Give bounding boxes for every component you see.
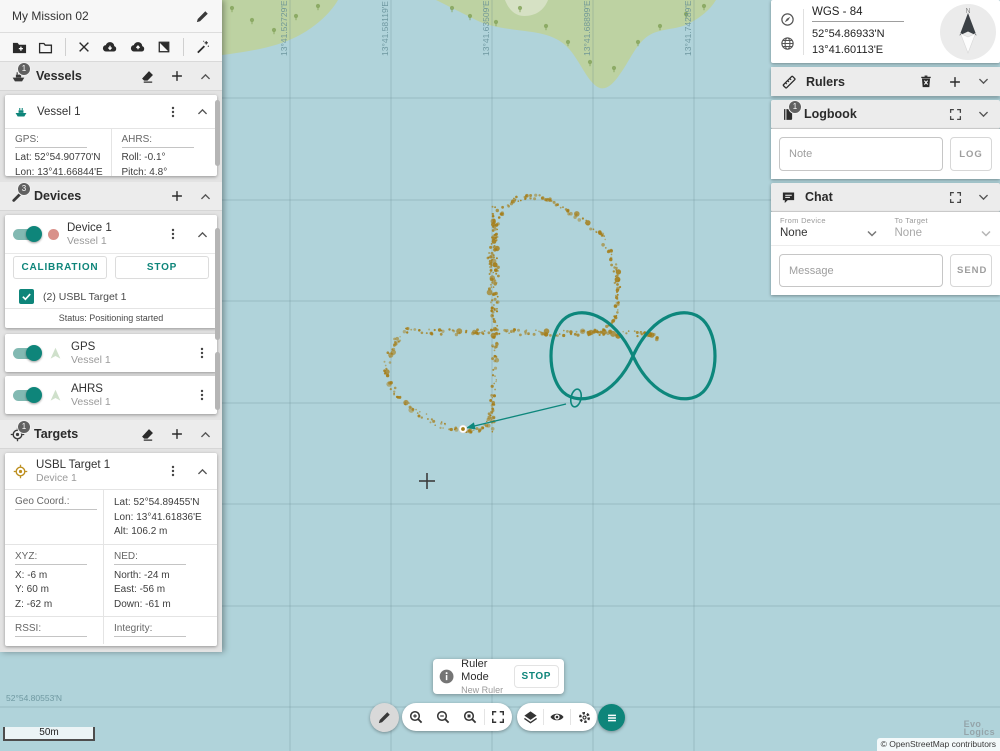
globe-icon xyxy=(780,36,795,51)
collapse-logbook-button[interactable] xyxy=(977,110,990,119)
to-target-select[interactable]: To Target None xyxy=(886,212,1000,245)
integrity-label: Integrity: xyxy=(114,623,186,637)
rulers-panel: Rulers xyxy=(771,67,1000,96)
save-contrast-icon xyxy=(157,40,171,54)
svg-text:13°41.63509'E: 13°41.63509'E xyxy=(481,0,491,56)
device-status-dot xyxy=(48,229,59,240)
target-geo-lat: Lat: 52°54.89455'N xyxy=(114,496,217,511)
ruler-stop-button[interactable]: STOP xyxy=(514,665,559,688)
devices-icon-wrap: 3 xyxy=(10,189,25,204)
collapse-chat-button[interactable] xyxy=(977,193,990,202)
chat-header[interactable]: Chat xyxy=(771,183,1000,212)
vessel-row[interactable]: Vessel 1 xyxy=(5,95,217,128)
layers-button[interactable] xyxy=(517,703,543,731)
target-x: X: -6 m xyxy=(15,569,103,584)
vessels-icon-wrap: 1 xyxy=(10,69,27,84)
cloud-upload-icon xyxy=(130,39,146,55)
svg-text:13°41.68899'E: 13°41.68899'E xyxy=(582,0,592,56)
add-ruler-button[interactable] xyxy=(948,75,962,89)
device-stop-button[interactable]: STOP xyxy=(115,256,209,279)
zoom-out-icon xyxy=(435,709,451,725)
zoom-out-button[interactable] xyxy=(429,703,456,731)
plus-icon xyxy=(170,69,184,83)
devices-title: Devices xyxy=(34,189,81,203)
usbl-target-checkbox-label: (2) USBL Target 1 xyxy=(43,291,126,303)
target-geo-section: Geo Coord.: Lat: 52°54.89455'N Lon: 13°4… xyxy=(5,489,217,544)
plus-icon xyxy=(170,427,184,441)
dropdown-arrow-icon xyxy=(867,230,877,237)
ruler-icon xyxy=(781,74,797,90)
pencil-icon xyxy=(195,9,210,24)
plus-icon xyxy=(170,189,184,203)
toolbar-divider xyxy=(65,38,66,56)
chevron-up-icon xyxy=(199,72,212,81)
svg-text:13°41.74289'E: 13°41.74289'E xyxy=(683,0,693,56)
datum-label: WGS - 84 xyxy=(812,6,904,22)
magic-wand-icon xyxy=(195,40,210,55)
gps-toggle[interactable] xyxy=(13,348,40,359)
right-sidebar: WGS - 84 52°54.86933'N 13°41.60113'E N R… xyxy=(771,0,1000,295)
vessel-icon xyxy=(13,105,29,119)
targets-icon-wrap: 1 xyxy=(10,427,25,442)
delete-rulers-button[interactable] xyxy=(919,74,933,89)
ahrs-pitch: Pitch: 4.8° xyxy=(122,166,218,177)
from-device-label: From Device xyxy=(780,216,877,225)
chat-title: Chat xyxy=(805,190,833,204)
coordinates-card: WGS - 84 52°54.86933'N 13°41.60113'E N xyxy=(771,0,1000,63)
collapse-vessels-button[interactable] xyxy=(199,72,212,81)
gps-lon: Lon: 13°41.66844'E xyxy=(15,166,111,177)
import-mission-button[interactable] xyxy=(102,39,118,55)
dropdown-arrow-icon xyxy=(981,230,991,237)
collapse-target-button[interactable] xyxy=(196,467,209,476)
vessel-menu-button[interactable] xyxy=(166,105,180,119)
rssi-label: RSSI: xyxy=(15,623,87,637)
mission-tools-button[interactable] xyxy=(195,40,210,55)
kebab-menu-icon xyxy=(166,464,180,478)
check-icon xyxy=(21,291,32,302)
target-xyz-ned-section: XYZ: X: -6 m Y: 60 m Z: -62 m NED: North… xyxy=(5,544,217,617)
layers-icon xyxy=(523,710,538,725)
target-z: Z: -62 m xyxy=(15,598,103,613)
targets-section-header[interactable]: 1 Targets xyxy=(0,420,222,449)
message-input[interactable] xyxy=(779,254,943,287)
zoom-controls xyxy=(402,703,512,731)
target-menu-button[interactable] xyxy=(166,464,180,478)
ahrs-roll: Roll: -0.1° xyxy=(122,151,218,166)
target-card: USBL Target 1Device 1 Geo Coord.: Lat: 5… xyxy=(5,453,217,646)
ahrs-toggle[interactable] xyxy=(13,390,40,401)
gps-device-row[interactable]: GPSVessel 1 xyxy=(5,334,217,372)
logbook-title: Logbook xyxy=(804,107,857,121)
gear-icon xyxy=(577,710,592,725)
ahrs-menu-button[interactable] xyxy=(195,388,209,402)
cursor-lat: 52°54.86933'N xyxy=(812,26,930,42)
gps-device-card: GPSVessel 1 xyxy=(5,334,217,372)
eye-icon xyxy=(549,709,565,725)
evologics-logo: Evo Logics xyxy=(964,720,995,736)
target-row[interactable]: USBL Target 1Device 1 xyxy=(5,453,217,489)
gps-menu-button[interactable] xyxy=(195,346,209,360)
collapse-device-button[interactable] xyxy=(196,230,209,239)
compass-icon xyxy=(780,12,795,27)
target-geo-lon: Lon: 13°41.61836'E xyxy=(114,511,217,526)
zoom-in-icon xyxy=(408,709,424,725)
clear-vessels-button[interactable] xyxy=(140,69,155,84)
kebab-menu-icon xyxy=(195,346,209,360)
devices-section-header[interactable]: 3 Devices xyxy=(0,182,222,211)
to-target-value: None xyxy=(895,227,923,239)
gps-device-vessel: Vessel 1 xyxy=(71,354,111,366)
save-mission-button[interactable] xyxy=(157,40,171,54)
logo-line-2: Logics xyxy=(964,728,995,736)
devices-list: Device 1Vessel 1 CALIBRATION STOP (2) US… xyxy=(0,211,222,420)
usbl-target-checkbox[interactable] xyxy=(19,289,34,304)
chevron-up-icon xyxy=(196,467,209,476)
left-sidebar: My Mission 02 1 Vessels xyxy=(0,0,222,652)
pencil-icon xyxy=(377,710,392,725)
to-target-label: To Target xyxy=(895,216,992,225)
add-target-button[interactable] xyxy=(170,427,184,441)
target-rssi-section: RSSI: Integrity: xyxy=(5,616,217,646)
logbook-panel: 1 Logbook LOG xyxy=(771,100,1000,179)
ahrs-device-vessel: Vessel 1 xyxy=(71,396,111,408)
targets-list: USBL Target 1Device 1 Geo Coord.: Lat: 5… xyxy=(0,449,222,652)
export-mission-button[interactable] xyxy=(130,39,146,55)
usbl-target-icon xyxy=(13,464,28,479)
close-mission-button[interactable] xyxy=(77,40,91,54)
device-row[interactable]: Device 1Vessel 1 xyxy=(5,215,217,253)
chevron-down-icon xyxy=(977,193,990,202)
visibility-button[interactable] xyxy=(544,703,570,731)
vessel-name: Vessel 1 xyxy=(37,106,80,118)
logbook-header[interactable]: 1 Logbook xyxy=(771,100,1000,129)
map-settings-button[interactable] xyxy=(571,703,597,731)
clear-targets-button[interactable] xyxy=(140,427,155,442)
target-east: East: -56 m xyxy=(114,583,217,598)
targets-count-badge: 1 xyxy=(17,420,31,434)
ahrs-device-card: AHRSVessel 1 xyxy=(5,376,217,414)
cloud-download-icon xyxy=(102,39,118,55)
vessels-section-header[interactable]: 1 Vessels xyxy=(0,62,222,91)
chevron-up-icon xyxy=(199,430,212,439)
device-toggle[interactable] xyxy=(13,229,40,240)
zoom-in-button[interactable] xyxy=(402,703,429,731)
rulers-header[interactable]: Rulers xyxy=(771,67,1000,96)
fullscreen-icon xyxy=(949,108,962,121)
logbook-count-badge: 1 xyxy=(788,100,802,114)
collapse-devices-button[interactable] xyxy=(199,192,212,201)
navigation-icon xyxy=(48,388,63,403)
devices-count-badge: 3 xyxy=(17,182,31,196)
targets-title: Targets xyxy=(34,427,78,441)
scrollbar-thumb[interactable] xyxy=(215,100,220,166)
log-button[interactable]: LOG xyxy=(950,137,992,171)
add-device-button[interactable] xyxy=(170,189,184,203)
rulers-title: Rulers xyxy=(806,75,845,89)
target-north: North: -24 m xyxy=(114,569,217,584)
usbl-target-checkbox-row[interactable]: (2) USBL Target 1 xyxy=(5,284,217,308)
zoom-area-icon xyxy=(462,709,478,725)
gps-lat: Lat: 52°54.90770'N xyxy=(15,151,111,166)
scrollbar-thumb[interactable] xyxy=(215,228,220,340)
close-icon xyxy=(77,40,91,54)
ahrs-device-name: AHRS xyxy=(71,383,111,395)
ned-label: NED: xyxy=(114,551,186,565)
note-input[interactable] xyxy=(779,137,943,171)
ruler-mode-button[interactable] xyxy=(370,703,399,732)
eraser-icon xyxy=(140,427,155,442)
gps-device-name: GPS xyxy=(71,341,111,353)
device-vessel: Vessel 1 xyxy=(67,235,112,247)
cursor-lon: 13°41.60113'E xyxy=(812,42,930,58)
expand-rulers-button[interactable] xyxy=(977,77,990,86)
ahrs-label: AHRS: xyxy=(122,134,194,148)
main-menu-button[interactable] xyxy=(598,704,625,731)
target-name: USBL Target 1 xyxy=(36,459,110,471)
chat-panel: Chat From Device None To Target None xyxy=(771,183,1000,295)
chevron-up-icon xyxy=(196,107,209,116)
from-device-select[interactable]: From Device None xyxy=(771,212,886,245)
target-geo-alt: Alt: 106.2 m xyxy=(114,525,217,540)
toolbar-divider xyxy=(183,38,184,56)
logbook-body: LOG xyxy=(771,129,1000,179)
svg-text:52°54.80553'N: 52°54.80553'N xyxy=(6,693,62,703)
device-card: Device 1Vessel 1 CALIBRATION STOP (2) US… xyxy=(5,215,217,328)
folder-icon xyxy=(38,40,53,55)
svg-text:13°41.58119'E: 13°41.58119'E xyxy=(380,1,390,56)
chat-icon xyxy=(781,190,796,205)
vessels-title: Vessels xyxy=(36,69,82,83)
kebab-menu-icon xyxy=(195,388,209,402)
fullscreen-icon xyxy=(491,710,505,724)
svg-text:13°41.52729'E: 13°41.52729'E xyxy=(279,0,289,56)
ahrs-device-row[interactable]: AHRSVessel 1 xyxy=(5,376,217,414)
mission-header: My Mission 02 xyxy=(0,0,222,33)
chevron-down-icon xyxy=(977,77,990,86)
mission-toolbar xyxy=(0,33,222,62)
app-window: 13°41.52729'E13°41.58119'E13°41.63509'E1… xyxy=(0,0,1000,751)
info-icon xyxy=(439,667,454,686)
collapse-vessel-button[interactable] xyxy=(196,107,209,116)
device-name: Device 1 xyxy=(67,222,112,234)
target-down: Down: -61 m xyxy=(114,598,217,613)
vessel-telemetry: GPS: Lat: 52°54.90770'N Lon: 13°41.66844… xyxy=(5,128,217,176)
zoom-area-button[interactable] xyxy=(457,703,484,731)
fit-view-button[interactable] xyxy=(485,703,512,731)
navigation-icon xyxy=(48,346,63,361)
map-view-controls xyxy=(517,703,597,731)
kebab-menu-icon xyxy=(166,227,180,241)
scrollbar-thumb[interactable] xyxy=(215,352,220,410)
logbook-icon-wrap: 1 xyxy=(781,107,795,122)
send-button[interactable]: SEND xyxy=(950,254,992,287)
gps-label: GPS: xyxy=(15,134,87,148)
hamburger-icon xyxy=(605,711,619,725)
device-menu-button[interactable] xyxy=(166,227,180,241)
toast-subtitle: New Ruler xyxy=(461,685,506,696)
map-scale-bar: 50m xyxy=(3,727,95,741)
edit-mission-button[interactable] xyxy=(195,9,210,24)
expand-logbook-button[interactable] xyxy=(949,108,962,121)
from-device-value: None xyxy=(780,227,808,239)
device-status-text: Status: Positioning started xyxy=(5,308,217,328)
target-device: Device 1 xyxy=(36,472,110,484)
target-y: Y: 60 m xyxy=(15,583,103,598)
mission-title: My Mission 02 xyxy=(12,9,89,23)
toast-title: Ruler Mode xyxy=(461,658,506,684)
geo-coord-label: Geo Coord.: xyxy=(15,496,97,510)
fullscreen-icon xyxy=(949,191,962,204)
trash-x-icon xyxy=(919,74,933,89)
eraser-icon xyxy=(140,69,155,84)
chat-body: From Device None To Target None SEND xyxy=(771,212,1000,295)
map-attribution: © OpenStreetMap contributors xyxy=(877,738,1000,751)
vessel-card: Vessel 1 GPS: Lat: 52°54.90770'N Lon: 13… xyxy=(5,95,217,176)
add-vessel-button[interactable] xyxy=(170,69,184,83)
collapse-targets-button[interactable] xyxy=(199,430,212,439)
open-mission-button[interactable] xyxy=(38,40,53,55)
compass-rose[interactable]: N xyxy=(938,2,998,62)
vessels-list: Vessel 1 GPS: Lat: 52°54.90770'N Lon: 13… xyxy=(0,91,222,182)
plus-icon xyxy=(948,75,962,89)
chevron-down-icon xyxy=(977,110,990,119)
new-mission-button[interactable] xyxy=(12,40,27,55)
folder-plus-icon xyxy=(12,40,27,55)
chevron-up-icon xyxy=(199,192,212,201)
expand-chat-button[interactable] xyxy=(949,191,962,204)
xyz-label: XYZ: xyxy=(15,551,87,565)
vessels-count-badge: 1 xyxy=(17,62,31,76)
ruler-mode-toast: Ruler Mode New Ruler STOP xyxy=(433,659,564,694)
calibration-button[interactable]: CALIBRATION xyxy=(13,256,107,279)
chevron-up-icon xyxy=(196,230,209,239)
kebab-menu-icon xyxy=(166,105,180,119)
